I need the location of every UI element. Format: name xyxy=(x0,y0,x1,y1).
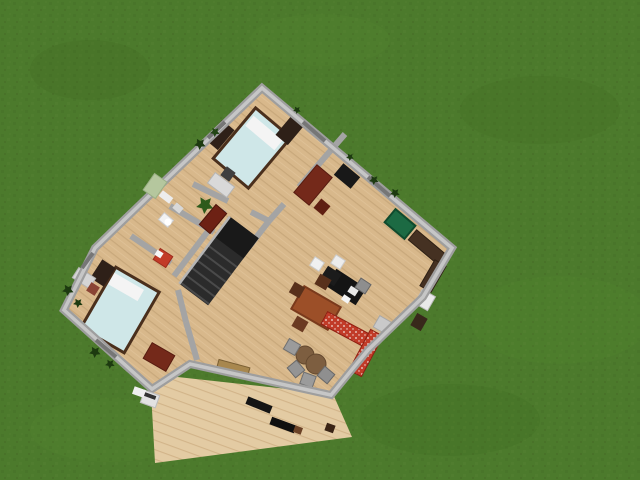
grass-shade xyxy=(30,40,150,100)
grass-shade xyxy=(460,76,620,144)
home-design-3d-aerial-view xyxy=(0,0,640,480)
grass-shade xyxy=(250,14,390,66)
floorplan-render xyxy=(0,0,640,480)
grass-shade xyxy=(360,384,540,456)
toilet-bowl xyxy=(165,219,172,226)
